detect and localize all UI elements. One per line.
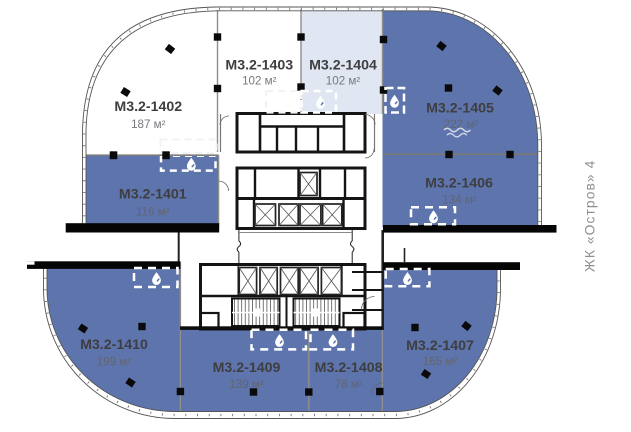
svg-text:134 м²: 134 м² [442, 193, 477, 206]
svg-text:M3.2-1409: M3.2-1409 [213, 360, 281, 376]
svg-text:M3.2-1403: M3.2-1403 [225, 58, 293, 74]
svg-text:M3.2-1404: M3.2-1404 [309, 58, 377, 74]
svg-text:78 м²: 78 м² [335, 378, 363, 391]
svg-text:M3.2-1408: M3.2-1408 [315, 360, 383, 376]
svg-text:116 м²: 116 м² [136, 205, 170, 218]
svg-text:M3.2-1405: M3.2-1405 [426, 100, 494, 116]
svg-text:M3.2-1407: M3.2-1407 [406, 338, 474, 354]
svg-text:ЖК «Остров» 4: ЖК «Остров» 4 [583, 160, 598, 272]
svg-text:M3.2-1410: M3.2-1410 [80, 337, 148, 353]
svg-text:M3.2-1401: M3.2-1401 [119, 187, 187, 203]
svg-text:165 м²: 165 м² [423, 355, 458, 368]
svg-text:187 м²: 187 м² [131, 118, 166, 131]
svg-text:M3.2-1402: M3.2-1402 [114, 99, 182, 115]
svg-text:139 м²: 139 м² [229, 378, 264, 391]
svg-text:199 м²: 199 м² [97, 356, 132, 369]
svg-text:102 м²: 102 м² [326, 75, 361, 88]
svg-text:102 м²: 102 м² [242, 75, 277, 88]
svg-text:M3.2-1406: M3.2-1406 [425, 176, 493, 192]
